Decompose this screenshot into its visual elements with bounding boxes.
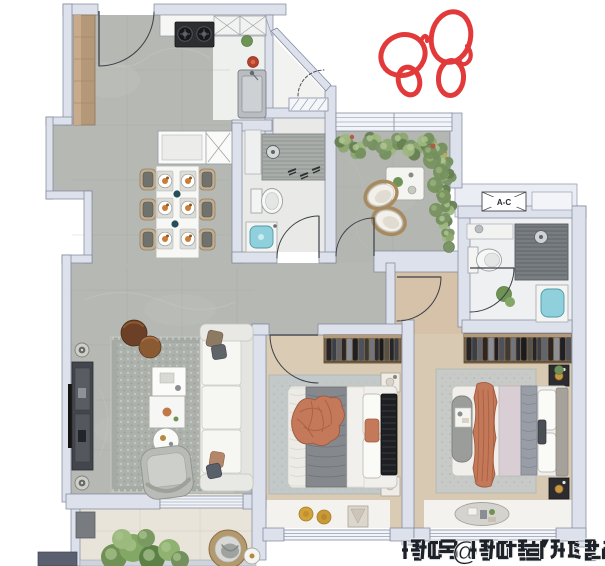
svg-text:A-C: A-C	[497, 198, 511, 207]
